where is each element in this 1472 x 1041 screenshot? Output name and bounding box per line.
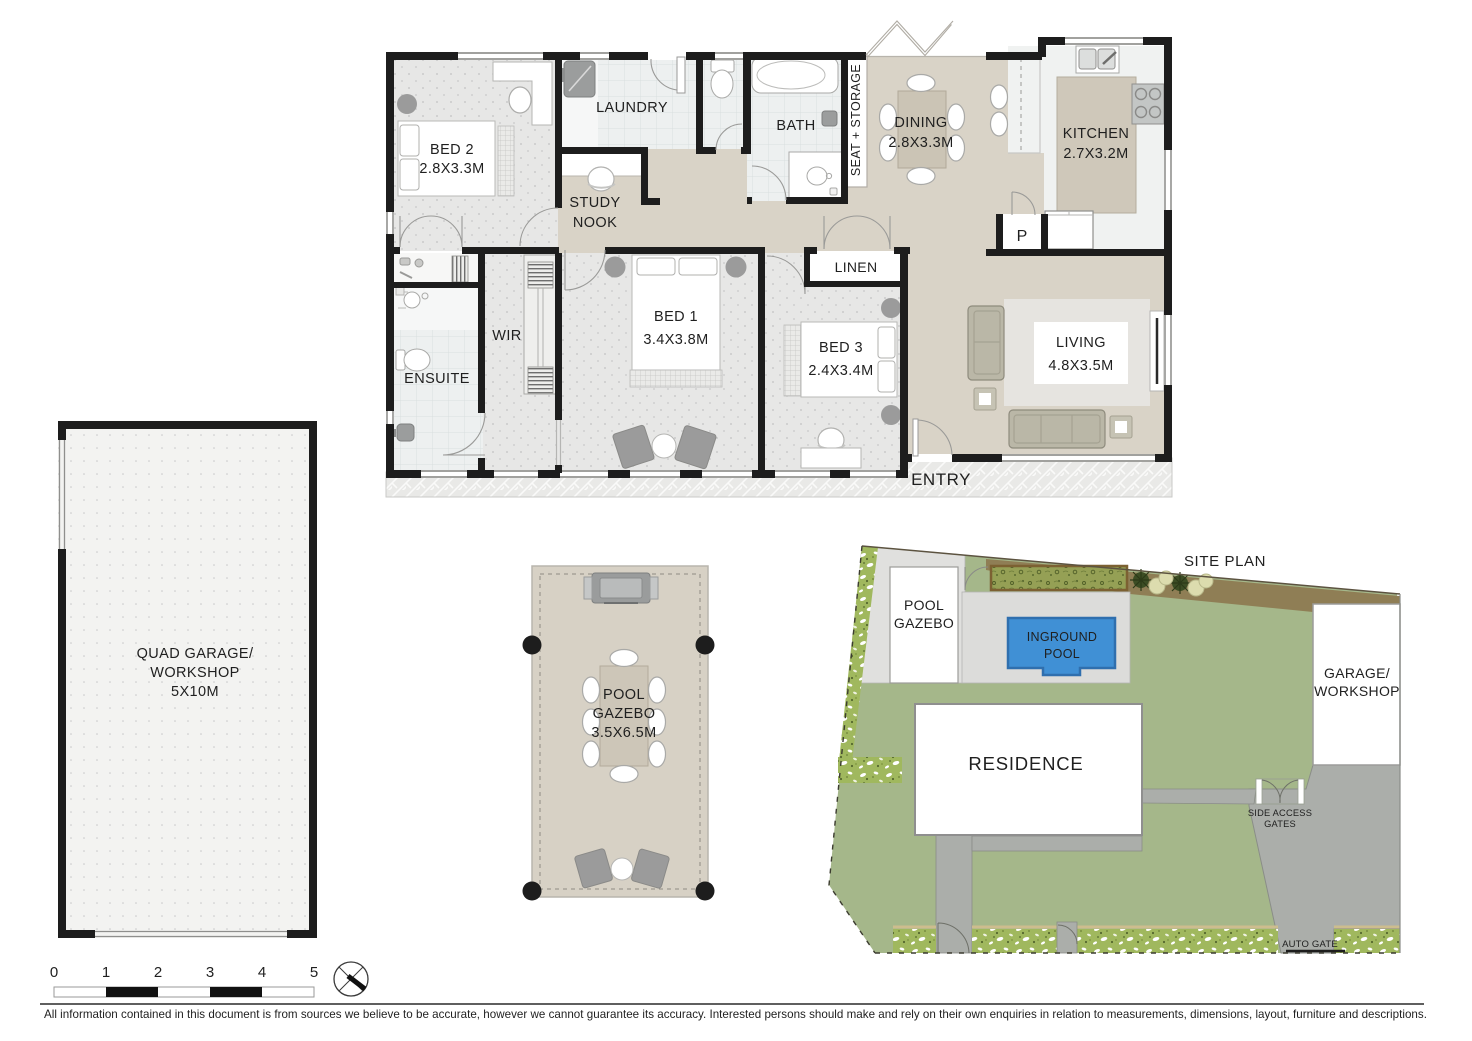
svg-text:2.7X3.2M: 2.7X3.2M	[1063, 146, 1128, 162]
svg-text:POOL: POOL	[603, 687, 645, 703]
svg-text:2: 2	[154, 964, 162, 981]
svg-text:GARAGE/: GARAGE/	[1324, 665, 1390, 681]
svg-text:WORKSHOP: WORKSHOP	[1314, 683, 1400, 699]
svg-text:3: 3	[206, 964, 214, 981]
svg-text:SIDE ACCESS: SIDE ACCESS	[1248, 808, 1312, 818]
svg-text:BED 1: BED 1	[654, 309, 698, 325]
svg-text:0: 0	[50, 964, 58, 981]
svg-text:5: 5	[310, 964, 318, 981]
svg-text:5X10M: 5X10M	[171, 684, 219, 700]
svg-text:RESIDENCE: RESIDENCE	[968, 753, 1083, 774]
svg-text:GAZEBO: GAZEBO	[894, 615, 954, 631]
svg-text:WIR: WIR	[492, 328, 521, 344]
svg-text:1: 1	[102, 964, 110, 981]
svg-text:POOL: POOL	[1044, 647, 1080, 661]
svg-text:2.4X3.4M: 2.4X3.4M	[808, 363, 873, 379]
svg-text:P: P	[1017, 228, 1028, 245]
svg-text:2.8X3.3M: 2.8X3.3M	[419, 161, 484, 177]
svg-text:POOL: POOL	[904, 597, 944, 613]
svg-text:BED 3: BED 3	[819, 340, 863, 356]
svg-text:3.5X6.5M: 3.5X6.5M	[591, 725, 656, 741]
svg-text:2.8X3.3M: 2.8X3.3M	[888, 135, 953, 151]
svg-text:ENTRY: ENTRY	[911, 470, 971, 489]
svg-text:SEAT + STORAGE: SEAT + STORAGE	[849, 64, 863, 176]
svg-text:LIVING: LIVING	[1056, 335, 1106, 351]
svg-text:GAZEBO: GAZEBO	[593, 706, 656, 722]
svg-text:SITE PLAN: SITE PLAN	[1184, 553, 1266, 570]
svg-text:BED 2: BED 2	[430, 142, 474, 158]
svg-text:QUAD GARAGE/: QUAD GARAGE/	[137, 646, 254, 662]
svg-text:WORKSHOP: WORKSHOP	[150, 665, 239, 681]
svg-text:LAUNDRY: LAUNDRY	[596, 100, 668, 116]
svg-text:4: 4	[258, 964, 266, 981]
svg-text:INGROUND: INGROUND	[1027, 630, 1097, 644]
svg-text:DINING: DINING	[894, 115, 947, 131]
svg-text:ENSUITE: ENSUITE	[404, 371, 470, 387]
svg-text:3.4X3.8M: 3.4X3.8M	[643, 332, 708, 348]
svg-text:4.8X3.5M: 4.8X3.5M	[1048, 358, 1113, 374]
svg-text:LINEN: LINEN	[835, 259, 878, 275]
svg-text:All information contained in t: All information contained in this docume…	[44, 1008, 1427, 1021]
svg-text:NOOK: NOOK	[573, 215, 617, 231]
svg-text:AUTO GATE: AUTO GATE	[1282, 939, 1338, 950]
svg-text:BATH: BATH	[776, 118, 815, 134]
svg-text:KITCHEN: KITCHEN	[1063, 126, 1129, 142]
svg-text:GATES: GATES	[1264, 819, 1296, 829]
svg-text:STUDY: STUDY	[569, 195, 620, 211]
